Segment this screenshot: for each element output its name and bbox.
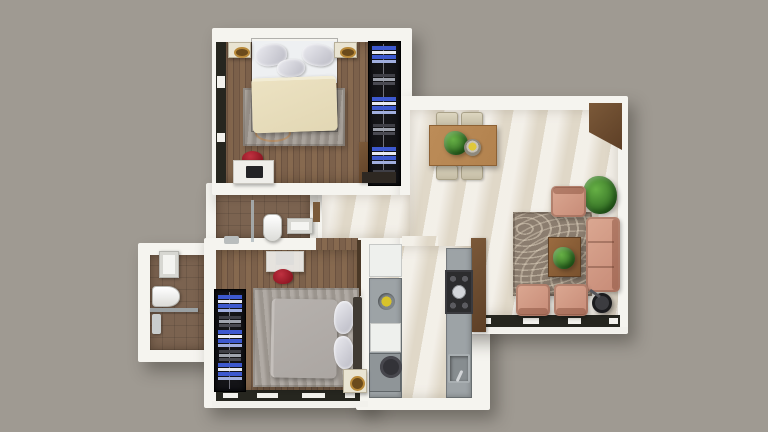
window-glass-icon: [568, 318, 581, 324]
tall-cabinet-column: [471, 238, 486, 332]
cushion-seam: [588, 266, 614, 268]
wall-shelf: [313, 202, 320, 222]
three-seat-sofa: [586, 217, 620, 292]
window-glass-icon: [523, 318, 539, 324]
shower-glass-partition: [251, 200, 254, 242]
window-glass-icon: [217, 133, 225, 142]
kitchen-sink: [448, 354, 470, 383]
folded-clothes-blue: [372, 46, 396, 63]
gold-decor-icon: [350, 376, 365, 391]
armchair-top: [551, 186, 586, 217]
master-dresser: [362, 172, 396, 183]
folded-clothes-blue: [218, 330, 242, 347]
armchair-back: [553, 187, 584, 194]
faucet-icon: [456, 370, 464, 382]
headboard: [353, 297, 362, 379]
round-sink-bowl: [378, 293, 395, 310]
cream-duvet: [251, 76, 338, 134]
nightstand-right: [334, 42, 357, 58]
bedroom-master-window: [216, 42, 226, 183]
washbasin: [287, 218, 313, 234]
corner-plant: [583, 176, 617, 214]
window-glass-icon: [609, 318, 618, 324]
folded-clothes-blue: [218, 295, 242, 312]
second-wardrobe: [215, 290, 245, 391]
fridge: [369, 244, 402, 277]
folded-clothes-gray: [373, 74, 395, 85]
dishwasher: [370, 323, 401, 352]
living-room-window-sill: [478, 327, 628, 333]
armchair-back: [518, 308, 548, 315]
cushion-seam: [588, 241, 614, 243]
armchair-bottom-left: [516, 284, 550, 316]
gold-decor-icon: [340, 47, 356, 58]
armchair-back: [556, 308, 586, 315]
pillow: [333, 300, 355, 334]
coffee-table-plant: [553, 247, 575, 269]
sofa-back: [612, 219, 618, 290]
window-glass-icon: [217, 76, 225, 88]
nightstand-left: [228, 42, 251, 58]
master-bed: [251, 38, 338, 132]
window-glass-icon: [257, 393, 278, 398]
window-glass-icon: [302, 393, 325, 398]
hallway-floor: [322, 195, 412, 238]
window-glass-icon: [345, 393, 355, 398]
glass-shelf: [150, 308, 198, 312]
folded-clothes-gray: [219, 316, 241, 327]
dining-chair: [436, 165, 458, 180]
bedroom-second-window: [216, 390, 360, 401]
folded-clothes-gray: [219, 350, 241, 361]
cooktop: [447, 272, 471, 312]
shower-set: [152, 314, 161, 334]
folded-clothes-blue: [218, 363, 242, 380]
master-wardrobe: [369, 42, 400, 185]
monitor: [246, 166, 263, 178]
living-room-window: [480, 315, 620, 327]
fruit-bowl: [464, 139, 481, 156]
second-bed: [271, 296, 362, 380]
folded-clothes-blue: [372, 147, 396, 164]
waste-bin: [380, 356, 402, 378]
dining-chair: [461, 165, 483, 180]
toilet: [263, 214, 282, 242]
armchair-bottom-right: [554, 284, 588, 316]
folded-clothes-gray: [373, 124, 395, 135]
washbasin: [159, 251, 179, 278]
gold-decor-icon: [234, 47, 250, 58]
folded-clothes-blue: [372, 97, 396, 114]
gray-duvet: [270, 298, 337, 378]
floor-lamp: [592, 293, 612, 313]
shower-set: [224, 236, 239, 244]
apartment-floor-plan: [0, 0, 768, 432]
window-glass-icon: [223, 393, 238, 398]
bedroom-second-window-sill: [212, 401, 368, 407]
toilet: [152, 286, 180, 307]
second-nightstand: [343, 369, 367, 393]
second-desk-chair: [273, 269, 293, 284]
